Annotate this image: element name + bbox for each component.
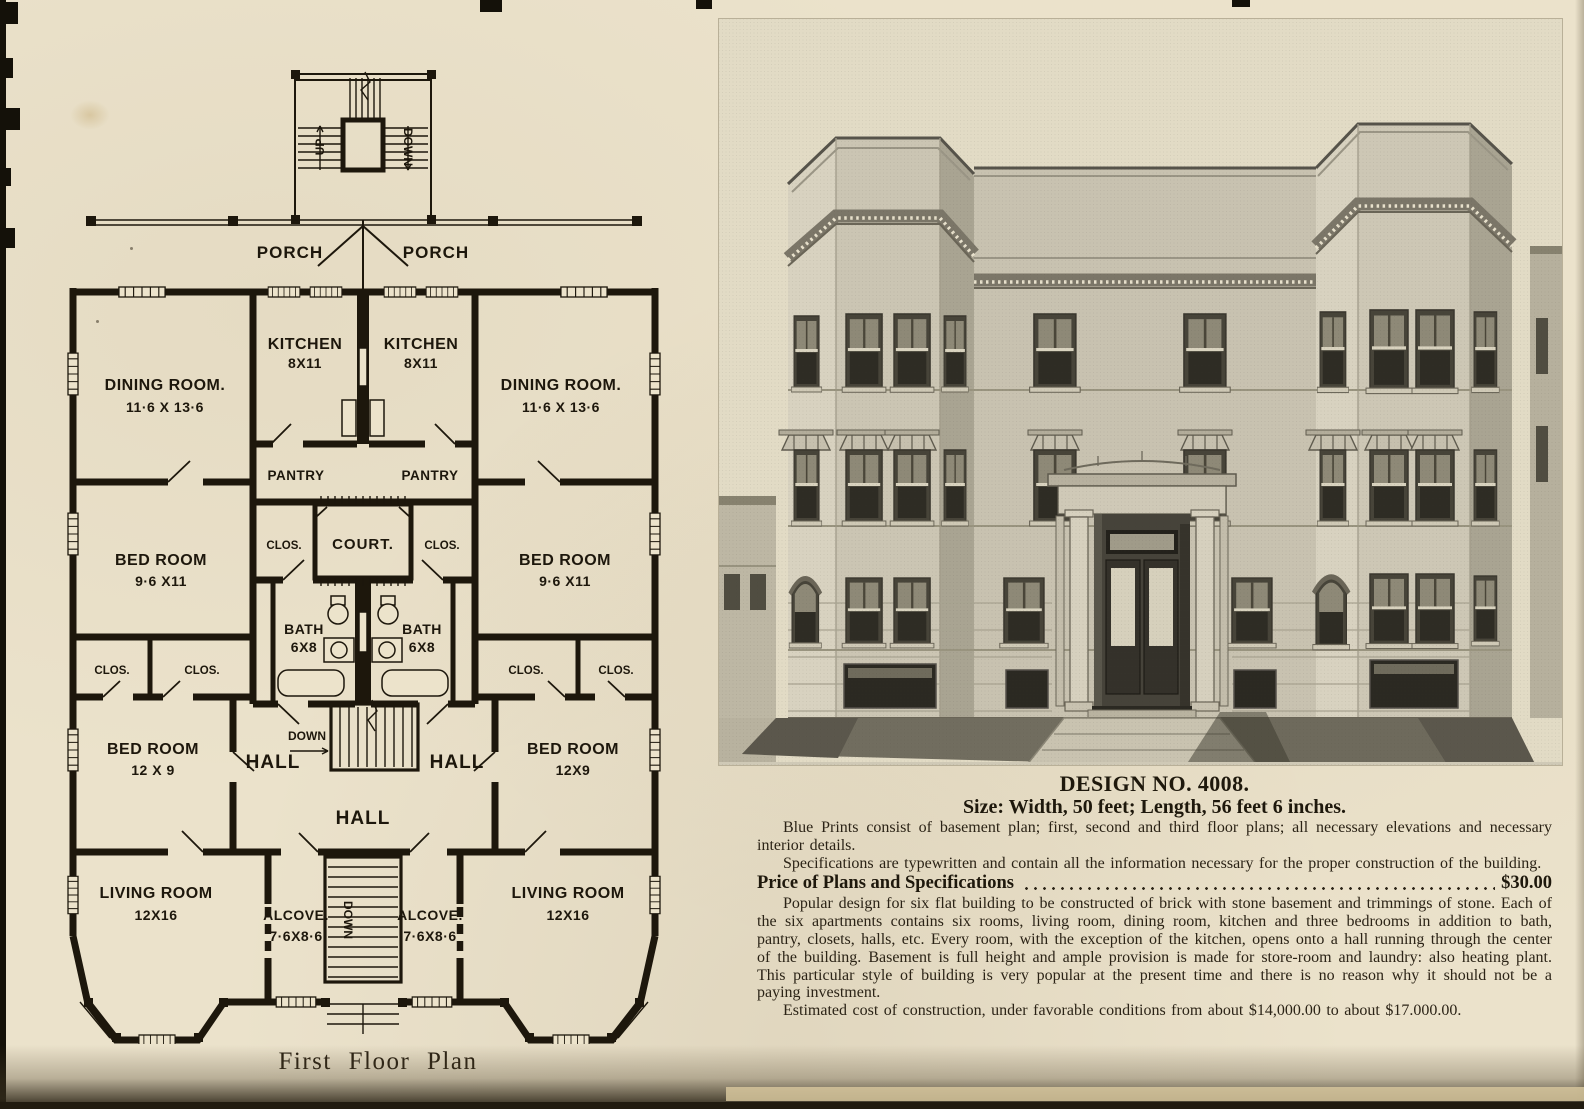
scan-mark (0, 2, 18, 24)
scan-mark (480, 0, 502, 12)
building-photo (718, 18, 1563, 766)
scan-mark (0, 228, 15, 248)
floor-plan-drawing: UP DOWN PORCH PORCH (28, 52, 700, 1044)
bedroom2-right-label: BED ROOM (527, 741, 619, 758)
bath-left-dims: 6X8 (291, 639, 317, 655)
blueprints-paragraph: Blue Prints consist of basement plan; fi… (757, 819, 1552, 855)
hall-right-label: HALL (430, 752, 485, 773)
page-curl-band (726, 1087, 1584, 1101)
closet-court-right-label: CLOS. (424, 540, 459, 552)
scan-mark (696, 0, 712, 9)
scan-mark (0, 168, 11, 186)
front-stairs (321, 857, 407, 1034)
design-title: DESIGN NO. 4008. (757, 772, 1552, 796)
bedroom2-right-dims: 12X9 (556, 762, 591, 778)
alcove-right-dims: 7·6X8·6 (403, 928, 456, 944)
closet-r1-label: CLOS. (508, 665, 543, 677)
floor-plan: UP DOWN PORCH PORCH (28, 52, 700, 1044)
building-photo-art (718, 18, 1563, 766)
living-left-dims: 12X16 (135, 907, 178, 923)
rear-stairs: UP DOWN (291, 70, 436, 224)
design-size: Size: Width, 50 feet; Length, 56 feet 6 … (757, 796, 1552, 819)
stair-down-front-label: DOWN (341, 901, 355, 939)
living-right-dims: 12X16 (547, 907, 590, 923)
scan-edge-left (0, 0, 6, 1109)
closet-r2-label: CLOS. (598, 665, 633, 677)
living-left-label: LIVING ROOM (99, 885, 212, 902)
stair-up-label: UP (313, 139, 327, 156)
description-paragraph: Popular design for six flat building to … (757, 895, 1552, 1002)
closet-court-left-label: CLOS. (266, 540, 301, 552)
alcove-right-label: ALCOVE. (397, 907, 463, 923)
bedroom2-left-label: BED ROOM (107, 741, 199, 758)
halftone-overlay (718, 18, 1563, 766)
bedroom1-left-dims: 9·6 X11 (135, 573, 187, 589)
bath-left-label: BATH (284, 621, 324, 637)
kitchen-left-label: KITCHEN (268, 336, 343, 353)
bedroom1-left-label: BED ROOM (115, 552, 207, 569)
kitchen-left-dims: 8X11 (288, 355, 322, 371)
stair-down-label: DOWN (401, 128, 415, 166)
scan-edge-right (1575, 0, 1584, 1109)
alcove-left-dims: 7·6X8·6 (269, 928, 322, 944)
design-details: DESIGN NO. 4008. Size: Width, 50 feet; L… (757, 772, 1552, 1020)
price-value: $30.00 (1501, 873, 1552, 894)
bath-right-dims: 6X8 (409, 639, 435, 655)
scan-mark (0, 58, 13, 78)
porch-right-label: PORCH (403, 243, 469, 262)
pantry-left-label: PANTRY (268, 468, 325, 483)
page-bottom-edge (0, 1102, 1584, 1109)
price-label: Price of Plans and Specifications (757, 873, 1014, 894)
hall-left-label: HALL (246, 752, 301, 773)
bedroom1-right-label: BED ROOM (519, 552, 611, 569)
bedroom1-right-dims: 9·6 X11 (539, 573, 591, 589)
pantry-right-label: PANTRY (402, 468, 459, 483)
alcove-left-label: ALCOVE. (263, 907, 329, 923)
porch: PORCH PORCH (86, 216, 642, 292)
bedroom2-left-dims: 12 X 9 (131, 762, 174, 778)
specifications-paragraph: Specifications are typewritten and conta… (757, 855, 1552, 873)
price-line: Price of Plans and Specifications $30.00 (757, 873, 1552, 894)
porch-left-label: PORCH (257, 243, 323, 262)
dining-right-dims: 11·6 X 13·6 (522, 399, 600, 415)
kitchen-right-label: KITCHEN (384, 336, 459, 353)
dining-left-label: DINING ROOM. (105, 377, 226, 394)
closet-l2-label: CLOS. (184, 665, 219, 677)
hall-center-label: HALL (336, 808, 391, 829)
scan-mark (1232, 0, 1250, 7)
bath-right-label: BATH (402, 621, 442, 637)
catalog-page: UP DOWN PORCH PORCH (0, 0, 1584, 1109)
dot-leader (1022, 885, 1495, 891)
living-right-label: LIVING ROOM (511, 885, 624, 902)
closet-l1-label: CLOS. (94, 665, 129, 677)
dining-right-label: DINING ROOM. (501, 377, 622, 394)
cost-paragraph: Estimated cost of construction, under fa… (757, 1002, 1552, 1020)
kitchen-right-dims: 8X11 (404, 355, 438, 371)
stair-down-mid-label: DOWN (288, 729, 326, 743)
scan-mark (0, 108, 20, 130)
dining-left-dims: 11·6 X 13·6 (126, 399, 204, 415)
court-label: COURT. (332, 536, 394, 553)
